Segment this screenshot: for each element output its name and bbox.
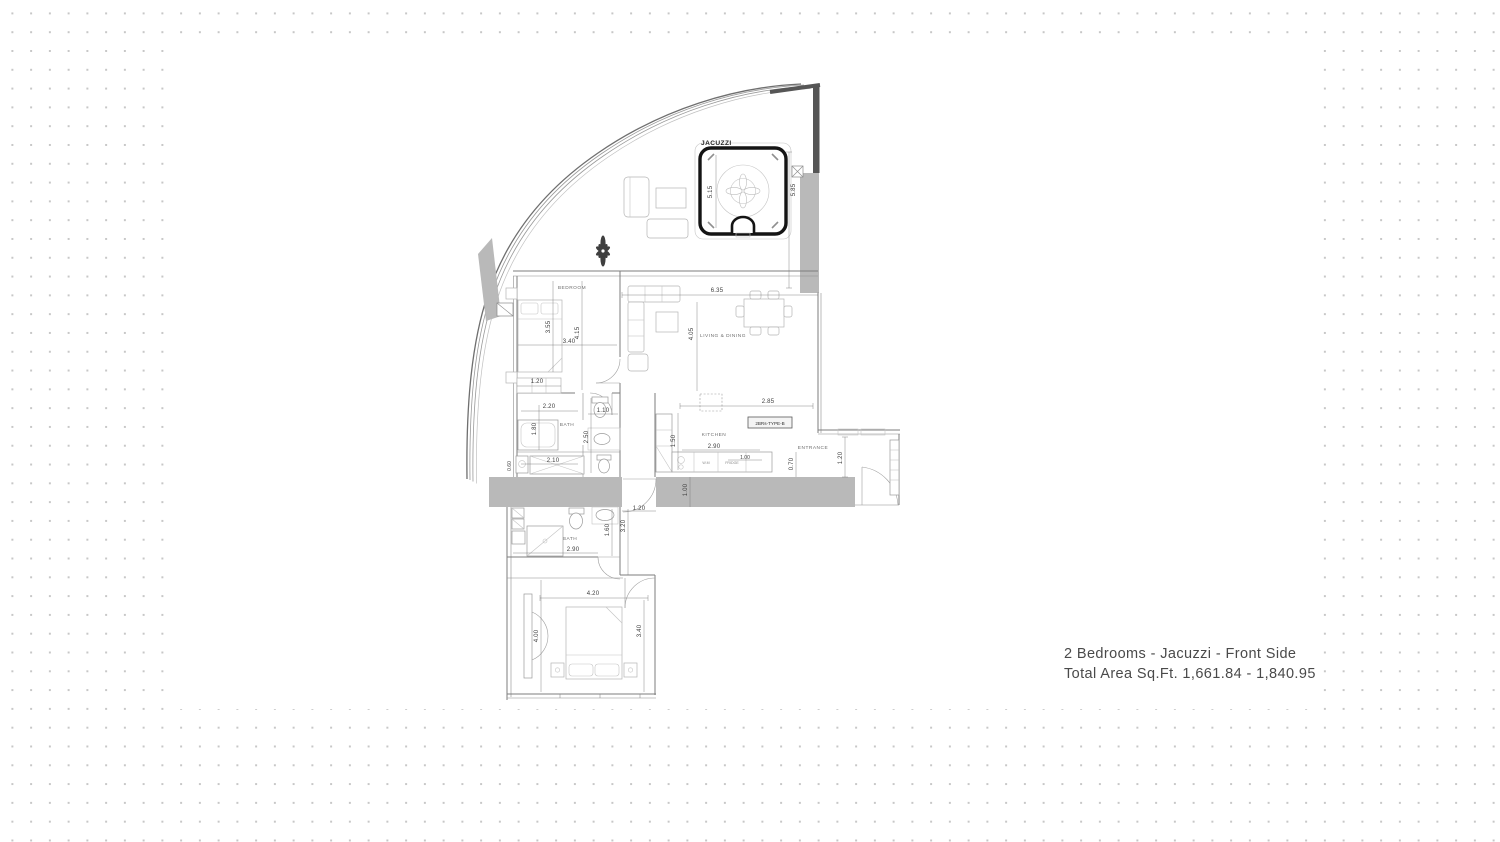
dim-bed2-width: 4.20: [587, 591, 600, 597]
dim-terrace-height: 5.85: [791, 183, 797, 196]
dot-grid-background: JACUZZI 5.15 5.85 BEDROOM: [0, 0, 1500, 842]
bedroom-top: BEDROOM 3.55 4.15 3.40 1.20: [506, 281, 617, 393]
bath-top-label: BATH: [560, 422, 574, 428]
dim-corridor-depth: 1.00: [683, 483, 689, 496]
dim-living-width: 6.35: [711, 288, 724, 294]
dim-bed1-closet: 1.20: [531, 379, 544, 385]
dim-entrance-width: 1.20: [838, 451, 844, 464]
dim-kitchen-top: 2.85: [762, 399, 775, 405]
living-dining: LIVING & DINING 6.35 4.05: [622, 286, 818, 391]
dim-bath1-width: 2.20: [543, 404, 556, 410]
dim-bath1-niche: 1.10: [597, 408, 610, 414]
plan-caption: 2 Bedrooms - Jacuzzi - Front Side Total …: [1064, 644, 1316, 684]
washing-machine-label: W.M: [702, 461, 709, 465]
dim-kitchen-side: 1.50: [671, 434, 677, 447]
entrance-label: ENTRANCE: [798, 445, 828, 451]
dim-bed2-height2: 3.40: [637, 624, 643, 637]
caption-title: 2 Bedrooms - Jacuzzi - Front Side: [1064, 644, 1316, 664]
terrace-furniture: [624, 177, 688, 238]
dim-bed1-depth2: 4.15: [575, 326, 581, 339]
caption-area: Total Area Sq.Ft. 1,661.84 - 1,840.95: [1064, 664, 1316, 684]
dim-bed2-height: 4.00: [534, 629, 540, 642]
plant-symbol: [595, 236, 611, 267]
kitchen-label: KITCHEN: [702, 432, 727, 438]
living-dining-label: LIVING & DINING: [700, 333, 746, 339]
dim-bath1-side: 0.60: [507, 461, 513, 471]
dim-bath1-height: 1.80: [532, 422, 538, 435]
dim-living-height: 4.05: [689, 327, 695, 340]
floor-plan: JACUZZI 5.15 5.85 BEDROOM: [0, 0, 1500, 842]
dim-bed1-depth: 3.55: [546, 320, 552, 333]
jacuzzi: JACUZZI 5.15 5.85: [695, 140, 797, 288]
dim-bath1-height2: 2.50: [584, 430, 590, 443]
dim-bath2-niche: 1.60: [605, 523, 611, 536]
dim-bath1-tub: 2.10: [547, 458, 560, 464]
fridge-label: FRIDGE: [725, 461, 739, 465]
dim-bath2-width: 2.90: [567, 547, 580, 553]
bath-lower: BATH 1.60 3.20 2.90: [512, 507, 628, 575]
dim-bath2-height: 3.20: [621, 519, 627, 532]
dim-entrance-depth: 0.70: [789, 457, 795, 470]
dim-kitchen-width: 2.90: [708, 444, 721, 450]
dim-corridor-width: 1.20: [633, 506, 646, 512]
dim-bed1-width: 3.40: [563, 339, 576, 345]
dim-kitchen-counter: 1.00: [740, 455, 750, 461]
bath-top: BATH 2.20 1.10 1.80 2.50 2.10 0.60: [507, 397, 620, 474]
dim-jacuzzi-width: 5.15: [708, 185, 714, 198]
bath-lower-label: BATH: [563, 536, 577, 542]
bedroom-lower: BEDROOM 4.20 4.00 3.40: [524, 580, 648, 692]
jacuzzi-label: JACUZZI: [701, 140, 732, 147]
unit-type-tag: 2BRs-TYPE-B: [755, 421, 784, 426]
